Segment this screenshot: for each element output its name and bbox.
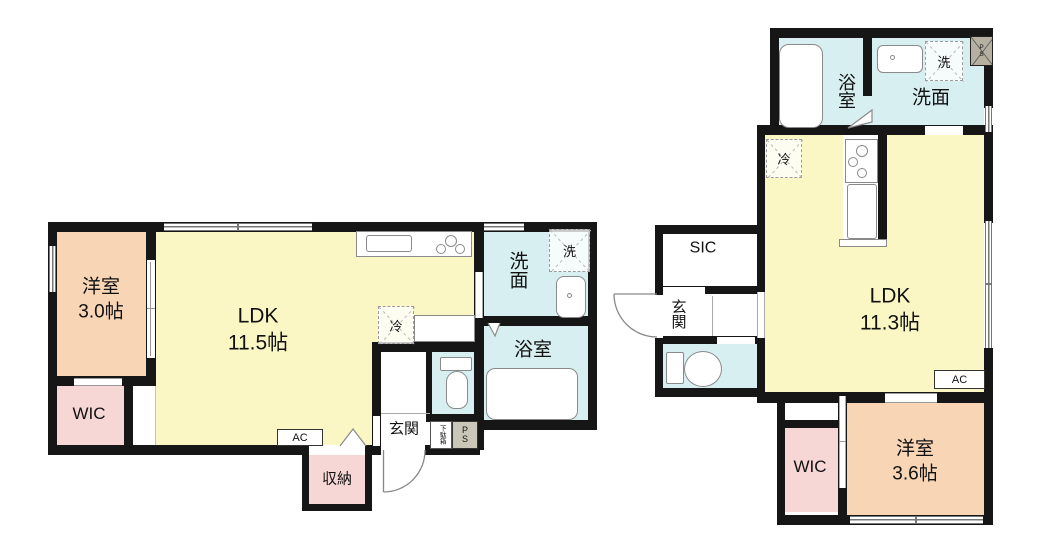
entrance-door-arc-icon <box>610 290 660 340</box>
wall <box>655 225 765 234</box>
door-washroom-to-ldk <box>925 126 963 135</box>
bath-door-icon <box>485 321 505 339</box>
fridge-space: 冷 <box>766 139 802 178</box>
door-hall-to-toilet <box>717 337 755 344</box>
sink-drain-icon <box>890 55 895 60</box>
western-room-label: 洋室 3.6帖 <box>892 437 937 486</box>
toilet-bowl <box>446 371 468 409</box>
bath-door-icon <box>844 108 874 132</box>
toilet-bowl <box>684 351 722 387</box>
sliding-door-line <box>147 308 155 309</box>
kitchen-sink <box>366 235 412 252</box>
ac-unit: AC <box>934 370 985 389</box>
pipe-space-label: P S <box>462 426 468 445</box>
front-door-arc-icon <box>382 449 428 495</box>
wall <box>474 222 484 450</box>
wall <box>777 392 785 525</box>
wall <box>474 420 597 430</box>
entrance-label: 玄関 <box>671 299 686 329</box>
sliding-door-line <box>839 441 846 442</box>
ac-unit: AC <box>277 429 323 446</box>
pipe-space-label: P S <box>979 44 983 58</box>
wall <box>124 386 133 446</box>
kitchen-cabinet <box>414 315 475 342</box>
bathtub <box>486 368 578 420</box>
washroom-label: 洗面 <box>912 87 950 112</box>
fridge-label: 冷 <box>777 149 790 168</box>
door-western-to-wic <box>74 378 122 386</box>
kitchen-counter-end <box>839 239 887 247</box>
bath-label: 浴室 <box>514 339 552 364</box>
wic-label: WIC <box>793 456 826 478</box>
western-room-label: 洋室 3.0帖 <box>78 275 123 324</box>
door-ldk-to-washroom <box>475 272 483 318</box>
ldk-label: LDK 11.3帖 <box>860 283 920 338</box>
shoe-cabinet-label: 下駄箱 <box>438 425 445 445</box>
door-hall-to-ldk <box>757 292 765 338</box>
storage-bifold-door-icon <box>338 427 368 448</box>
wall <box>426 352 432 416</box>
wall <box>984 131 993 223</box>
door-ldk-to-hall <box>373 416 380 446</box>
ac-label: AC <box>292 432 307 444</box>
stove-burner-icon <box>436 244 446 254</box>
wic-label: WIC <box>72 403 105 425</box>
toilet-tank <box>440 357 472 371</box>
entrance-step-line <box>381 413 430 414</box>
wall <box>863 36 872 96</box>
wall <box>984 403 993 525</box>
ac-label: AC <box>952 374 967 386</box>
shoe-cabinet: 下駄箱 <box>430 421 452 449</box>
washer-label: 洗 <box>563 241 576 260</box>
wall <box>777 420 845 428</box>
wall <box>757 392 993 403</box>
wall <box>770 28 779 135</box>
window-mullion <box>985 283 992 285</box>
entrance-step-line <box>712 296 713 336</box>
window-mullion <box>915 516 917 524</box>
toilet-tank <box>666 352 684 384</box>
bathtub <box>779 44 823 128</box>
stove-burner-icon <box>848 157 858 167</box>
storage-label: 収納 <box>322 469 352 489</box>
stove-burner-icon <box>455 244 465 254</box>
washer-space: 洗 <box>549 229 590 272</box>
pipe-space: P S <box>452 421 478 449</box>
washer-space: 洗 <box>925 41 963 81</box>
kitchen-sink <box>847 184 877 239</box>
sliding-door-ldk-to-western <box>885 393 937 403</box>
window <box>484 223 524 231</box>
window-mullion <box>237 223 239 231</box>
wall <box>655 388 765 397</box>
wall <box>757 125 765 395</box>
window <box>49 246 56 292</box>
pipe-space: P S <box>970 36 993 66</box>
sic-label: SIC <box>690 239 717 260</box>
washroom-label: 洗面 <box>508 251 527 289</box>
door-entrance-to-sic <box>663 287 705 294</box>
ldk-label: LDK 11.5帖 <box>228 303 288 358</box>
window <box>985 106 992 132</box>
washroom-sink <box>877 45 923 73</box>
wall <box>770 28 993 38</box>
stove-burner-icon <box>857 168 867 178</box>
bath-label: 浴室 <box>837 73 855 109</box>
fridge-space: 冷 <box>378 306 414 344</box>
entrance-label: 玄関 <box>389 419 419 439</box>
floorplan-canvas: 冷 洗 下駄箱 P S AC <box>0 0 1037 557</box>
left-wic-nook <box>133 386 156 446</box>
stove-burner-icon <box>856 145 868 157</box>
sink-drain-icon <box>567 293 572 298</box>
washer-label: 洗 <box>937 52 950 71</box>
kitchen-wall <box>878 133 887 245</box>
fridge-label: 冷 <box>389 316 402 335</box>
